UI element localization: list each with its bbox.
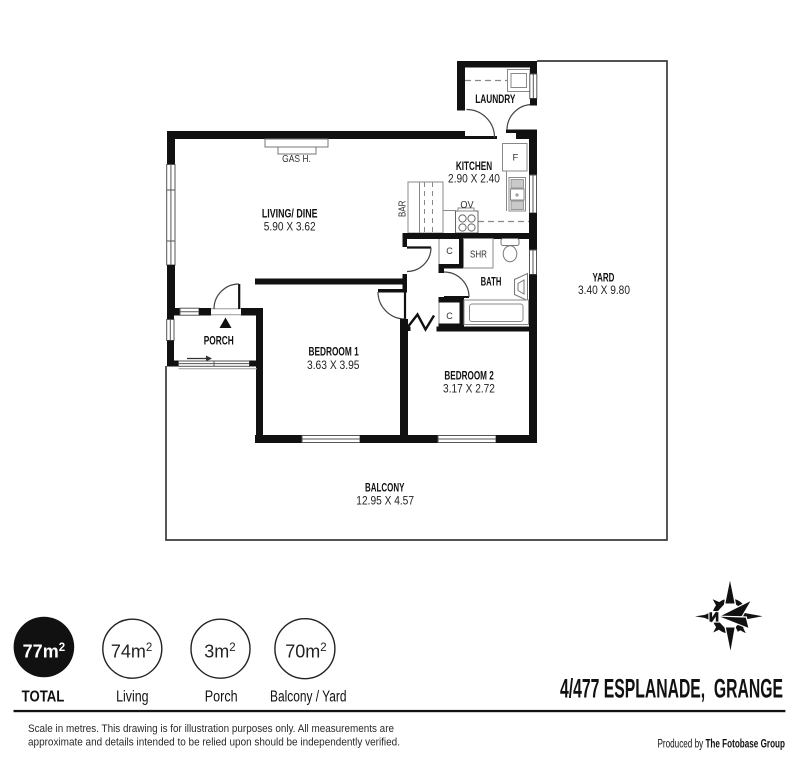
svg-text:Scale in metres. This drawing: Scale in metres. This drawing is for ill… — [28, 723, 394, 735]
svg-text:3.17 X 2.72: 3.17 X 2.72 — [443, 382, 495, 396]
svg-text:F: F — [512, 153, 518, 164]
svg-text:Living: Living — [116, 688, 148, 705]
svg-text:4/477 ESPLANADE, GRANGE: 4/477 ESPLANADE, GRANGE — [560, 673, 783, 703]
svg-text:Porch: Porch — [205, 688, 238, 705]
svg-text:approximate and details intend: approximate and details intended to be r… — [28, 737, 400, 749]
svg-text:SHR: SHR — [470, 250, 487, 261]
svg-text:LIVING/ DINE: LIVING/ DINE — [262, 206, 318, 220]
svg-text:BEDROOM 1: BEDROOM 1 — [308, 345, 358, 359]
svg-text:BAR: BAR — [398, 201, 409, 218]
svg-text:12.95 X 4.57: 12.95 X 4.57 — [356, 493, 414, 507]
svg-text:C: C — [446, 246, 453, 256]
svg-text:2.90 X 2.40: 2.90 X 2.40 — [448, 171, 500, 185]
svg-text:BATH: BATH — [481, 275, 502, 289]
svg-text:Produced by The Fotobase Group: Produced by The Fotobase Group — [658, 739, 786, 751]
svg-text:C: C — [446, 311, 453, 321]
svg-text:5.90 X 3.62: 5.90 X 3.62 — [264, 219, 316, 233]
svg-text:BALCONY: BALCONY — [365, 480, 404, 494]
svg-text:BEDROOM 2: BEDROOM 2 — [444, 368, 494, 382]
svg-text:Balcony / Yard: Balcony / Yard — [270, 688, 347, 705]
svg-text:PORCH: PORCH — [204, 334, 234, 348]
svg-text:3.63 X 3.95: 3.63 X 3.95 — [307, 358, 360, 372]
svg-text:TOTAL: TOTAL — [22, 688, 65, 705]
svg-text:GAS H.: GAS H. — [282, 154, 311, 165]
svg-text:LAUNDRY: LAUNDRY — [475, 92, 515, 106]
svg-text:OV: OV — [460, 200, 473, 211]
svg-text:3.40 X 9.80: 3.40 X 9.80 — [578, 283, 630, 297]
